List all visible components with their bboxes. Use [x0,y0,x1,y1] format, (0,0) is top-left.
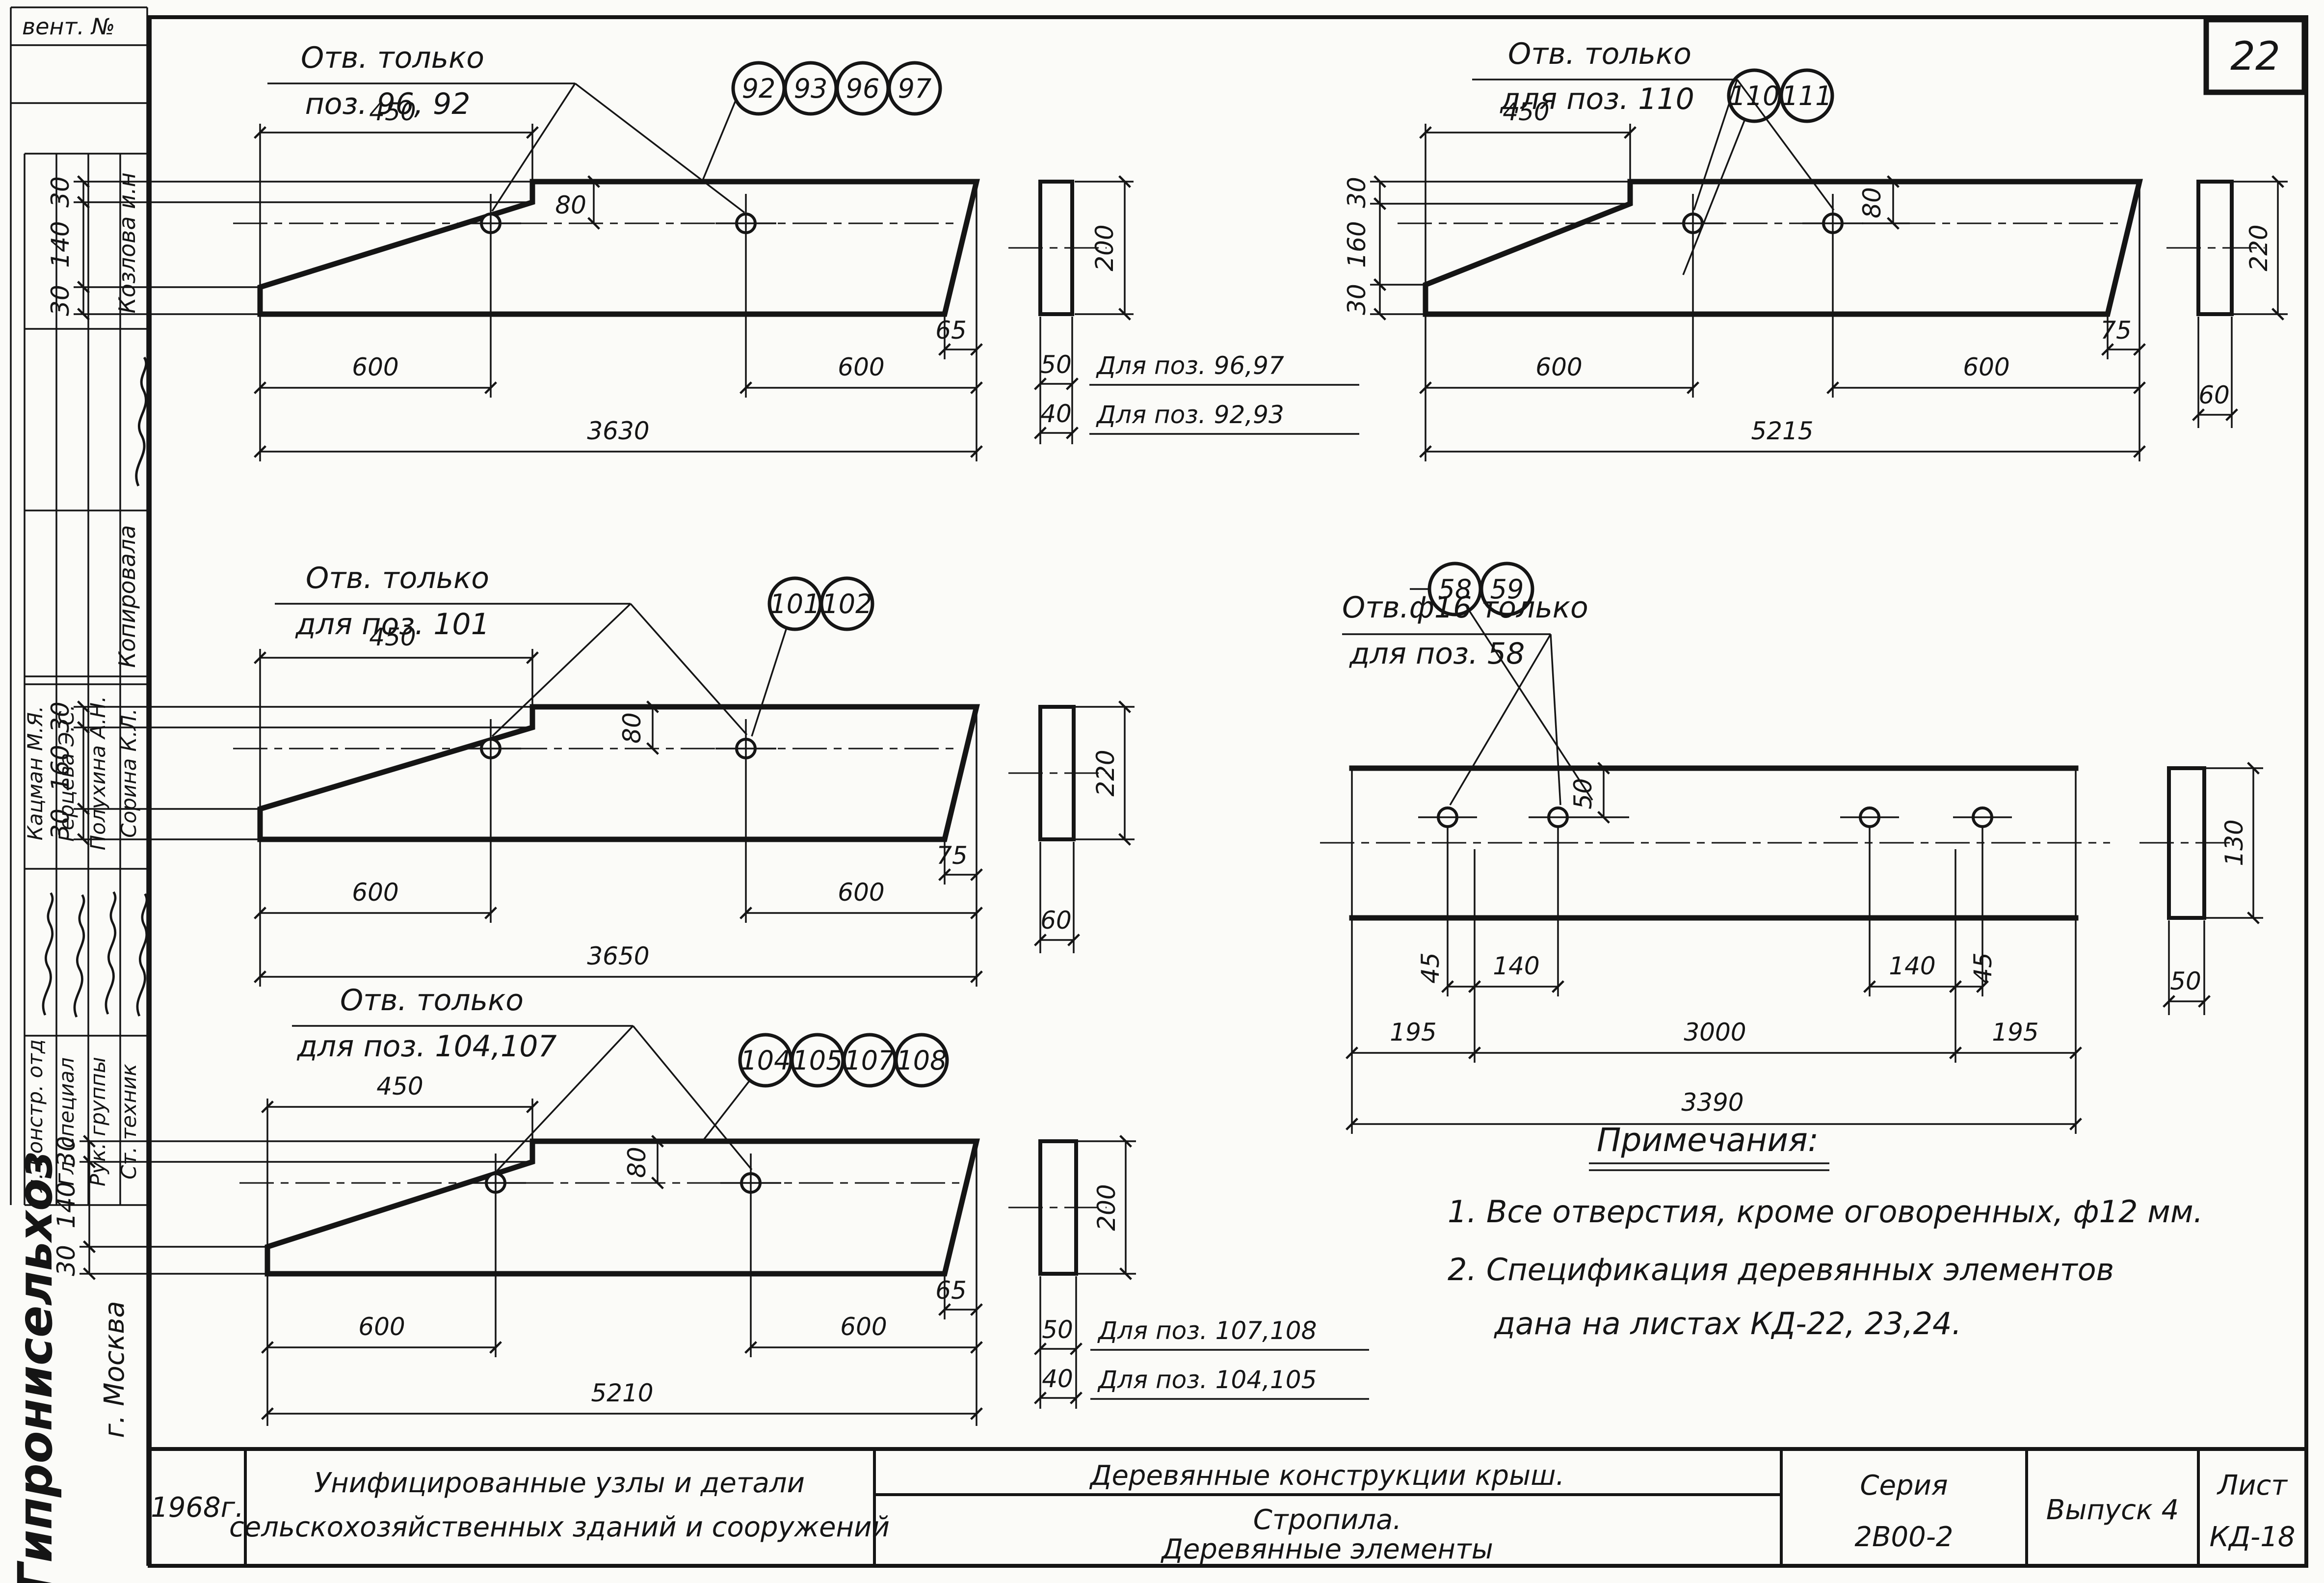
dim-label: 600 [838,353,884,381]
dim-label: 80 [623,1147,651,1178]
bubble-number: 107 [844,1045,895,1076]
dim-label: 450 [369,623,416,651]
drawing-sheet: 22 вент. № Козлова и.н Копировала Кацман… [0,0,2324,1583]
bubble-number: 110 [1729,80,1779,111]
dim-label: 600 [1535,353,1582,381]
dim-label: 45 [1416,952,1445,984]
signature-squiggle [106,892,115,1014]
sheet-value: КД-18 [2210,1521,2296,1553]
cross-section: 200 50 Для поз. 96,97 40 Для поз. 92,93 [1008,182,1359,444]
note-line2: для поз. 58 [1349,637,1525,671]
dim-label: 75 [936,841,968,870]
drawing-rafter-104-108: Отв. только для поз. 104,107 104 105 107… [52,983,1369,1426]
dim-label: 30 [46,701,75,733]
cross-section: 220 60 [1008,707,1135,953]
dim-label: 30 [1343,284,1371,315]
title-org-line1: Унифицированные узлы и детали [314,1467,805,1499]
note-line1: Отв. только [301,41,484,75]
dim-label: 450 [376,1072,423,1100]
dim-label: 30 [52,1245,80,1276]
dimensions: 50 45 140 140 45 195 3000 195 3390 [1352,768,2076,1134]
page-number: 22 [2230,33,2280,79]
signature-squiggle [75,895,84,1017]
note-line1: Отв. только [306,561,489,595]
bubble-number: 101 [769,589,820,619]
dim-label: 50 [1569,778,1597,809]
bubble-number: 93 [794,73,828,104]
note-callout: Отв. только для поз. 101 [275,561,747,736]
bubble-number: 102 [821,589,872,619]
dim-label: 40 [1040,400,1072,428]
bubble-number: 92 [742,73,776,104]
copier-name: Козлова и.н [114,172,140,313]
dimensions: 450 30 140 30 80 65 600 600 3630 [46,98,977,461]
signature-squiggle [43,893,53,1015]
bubble-number: 108 [896,1045,947,1076]
dim-label: 30 [46,285,75,316]
sheet-canvas: 22 вент. № Козлова и.н Копировала Кацман… [0,0,2324,1583]
note-item: 1. Все отверстия, кроме оговоренных, ф12… [1448,1194,2203,1230]
dim-label: 30 [46,176,75,208]
note-item: 2. Спецификация деревянных элементов [1448,1252,2114,1288]
bubble-number: 58 [1438,574,1472,605]
cross-section: 130 50 [2139,768,2263,1015]
person-name: Полухина А.Н. [86,696,110,851]
dim-label: 450 [1503,98,1549,126]
dim-label: 3000 [1684,1018,1746,1046]
person-name: Кацман М.Я. [23,706,47,841]
dim-label: 60 [1040,906,1072,935]
title-main: Деревянные конструкции крыш. [1089,1460,1565,1492]
sheet-label: Лист [2217,1470,2288,1502]
dim-label: 140 [52,1181,80,1228]
dim-label: 30 [1343,177,1371,208]
issue-label: Выпуск 4 [2046,1494,2179,1526]
note-line1: Отв. только [1508,37,1691,71]
title-org-line2: сельскохозяйственных зданий и сооружений [229,1511,890,1543]
note-line1: Отв. только [340,983,524,1018]
dim-label: 40 [1042,1365,1073,1393]
section-variant: Для поз. 96,97 [1096,351,1284,380]
bubble-number: 59 [1490,574,1524,605]
bubble-number: 111 [1781,80,1832,111]
drawing-rafter-110-111: Отв. только для поз. 110 110 111 450 30 … [1343,37,2288,461]
dim-label: 65 [935,316,967,345]
section-variant: Для поз. 107,108 [1097,1316,1317,1345]
dim-label: 160 [46,745,75,791]
signature-squiggle [136,357,146,486]
dim-label: 200 [1092,1184,1121,1231]
dimensions: 450 30 160 30 80 75 600 600 3650 [46,623,977,987]
dim-label: 75 [2100,316,2132,345]
dim-label: 220 [2245,224,2273,271]
dim-label: 220 [1091,750,1120,796]
beam-outline [1426,182,2139,314]
note-line2: для поз. 104,107 [296,1029,556,1064]
dimensions: 450 30 160 30 80 75 600 600 5215 [1343,98,2139,461]
dim-label: 195 [1390,1018,1436,1046]
dim-label: 195 [1992,1018,2038,1046]
drawing-rafter-92-97: Отв. только поз. 96, 92 92 93 96 97 450 … [46,41,1359,461]
note-callout: Отв.ф16 только для поз. 58 [1342,590,1588,805]
dim-label: 160 [1343,221,1371,268]
dim-label: 50 [1040,350,1072,379]
dim-label: 3630 [587,417,649,445]
bubble-number: 104 [740,1045,791,1076]
dim-label: 5215 [1751,417,1813,445]
series-value: 2В00-2 [1854,1521,1953,1553]
notes-block: Примечания: 1. Все отверстия, кроме огов… [1448,1121,2203,1342]
signature-squiggle [137,894,147,1016]
dim-label: 600 [1963,353,2009,381]
cross-section: 200 50 Для поз. 107,108 40 Для поз. 104,… [1008,1141,1369,1409]
dim-label: 600 [358,1313,405,1341]
dim-label: 140 [46,221,75,268]
drawing-plank-58-59: Отв.ф16 только для поз. 58 58 59 50 45 1… [1320,563,2263,1134]
stamp-sidebar: вент. № Козлова и.н Копировала Кацман М.… [8,7,147,1583]
title-sub2: Деревянные элементы [1160,1533,1493,1565]
dim-label: 130 [2220,819,2248,866]
cross-section: 220 60 [2166,182,2288,428]
vent-number-label: вент. № [22,13,115,40]
note-item: дана на листах КД-22, 23,24. [1494,1306,1961,1342]
dim-label: 65 [935,1276,967,1305]
position-bubbles: 101 102 [752,578,872,736]
position-bubbles: 104 105 107 108 [702,1035,947,1142]
dim-label: 30 [52,1136,80,1167]
bubble-number: 97 [898,73,932,104]
bubble-number: 96 [846,73,880,104]
dim-label: 3390 [1681,1088,1743,1117]
dim-label: 140 [1889,952,1935,980]
dim-label: 140 [1493,952,1539,980]
copier-role: Копировала [114,525,140,668]
dim-label: 600 [352,878,398,907]
dim-label: 200 [1090,224,1119,271]
dim-label: 45 [1969,952,1997,984]
note-callout: Отв. только поз. 96, 92 [267,41,744,213]
series-label: Серия [1860,1470,1948,1502]
notes-title: Примечания: [1597,1121,1819,1159]
dim-label: 80 [618,712,646,744]
dim-label: 600 [352,353,398,381]
dim-label: 600 [840,1313,887,1341]
dim-label: 30 [46,808,75,840]
dim-label: 5210 [591,1379,653,1407]
title-sub1: Стропила. [1253,1504,1401,1536]
dim-label: 50 [2170,967,2201,995]
position-bubbles: 92 93 96 97 [702,63,940,183]
dim-label: 3650 [587,942,649,970]
dim-label: 450 [369,98,416,126]
drawing-rafter-101-102: Отв. только для поз. 101 101 102 450 30 … [46,561,1135,987]
section-variant: Для поз. 92,93 [1096,401,1284,429]
organization-city: г. Москва [99,1301,131,1438]
bubble-number: 105 [792,1045,843,1076]
dim-label: 80 [555,191,586,219]
title-block: 1968г. Унифицированные узлы и детали сел… [150,1449,2306,1566]
dim-label: 50 [1042,1315,1073,1344]
section-variant: Для поз. 104,105 [1097,1366,1317,1394]
dim-label: 600 [838,878,884,907]
dim-label: 60 [2198,381,2230,409]
dim-label: 80 [1858,187,1886,218]
dimensions: 450 30 140 30 80 65 600 600 5210 [52,1072,977,1426]
